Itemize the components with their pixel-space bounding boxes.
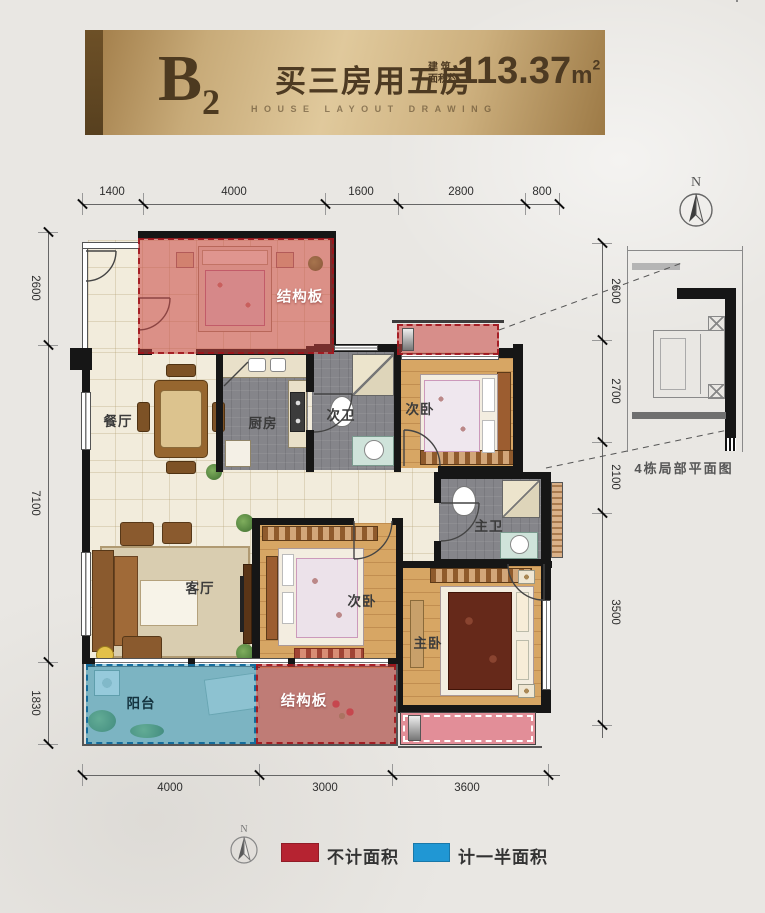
inset-border-top (627, 250, 743, 251)
bay-wedge (402, 328, 414, 351)
wall (252, 518, 354, 525)
wall (434, 479, 441, 503)
bed-pillow (516, 640, 529, 680)
legend-label-red: 不计面积 (327, 843, 399, 868)
wall-outline (82, 242, 140, 249)
unit-code-main: B (158, 42, 202, 115)
banner-left-bar (85, 30, 103, 135)
area-prefix-line1: 建 筑 (428, 62, 451, 73)
north-compass-top: N (672, 172, 720, 234)
dimension-line-top (82, 204, 560, 205)
bed-blanket-master (448, 592, 512, 690)
area-unit: m (571, 62, 592, 89)
legend-label-blue: 计一半面积 (458, 843, 548, 868)
bay-ledge (551, 482, 563, 558)
compass-needle-dark (689, 194, 696, 222)
nightstand (518, 684, 535, 698)
balcony-edge (396, 664, 398, 746)
nightstand (518, 570, 535, 584)
label-slab-bottom: 结构板 (281, 690, 328, 711)
inset-gray-bar (632, 412, 726, 419)
label-dining: 餐厅 (104, 410, 133, 430)
wardrobe (262, 526, 378, 541)
dim-right-3: 2100 (609, 464, 621, 490)
floor-plan-page: B2 买三房用五房 建 筑面积约 113.37m2 HOUSE LAYOUT D… (0, 0, 765, 913)
compass-needle-light (244, 837, 250, 860)
armchair (120, 522, 154, 546)
wall-outline (82, 248, 88, 350)
inset-border-left (627, 246, 628, 452)
dim-bottom-1: 4000 (157, 782, 183, 794)
bed-pillow (516, 592, 529, 632)
label-bedroom-second-top: 次卧 (406, 398, 435, 418)
bed-headboard (497, 372, 511, 460)
window (542, 600, 551, 690)
label-bath-second: 次卫 (327, 404, 356, 424)
kitchen-sink (270, 358, 286, 372)
unit-code: B2 (158, 46, 220, 120)
wall (396, 561, 508, 568)
unit-code-sub: 2 (202, 82, 220, 122)
dim-left-3: 1830 (29, 690, 41, 716)
toilet (452, 486, 476, 516)
dim-bottom-3: 3600 (454, 782, 480, 794)
dim-right-2: 2700 (609, 378, 621, 404)
dim-top-3: 1600 (348, 186, 374, 198)
bed-pillow (282, 592, 294, 624)
balcony-edge (82, 664, 84, 746)
wardrobe (430, 568, 532, 583)
label-living: 客厅 (186, 577, 215, 597)
label-slab-top: 结构板 (277, 286, 324, 307)
connector-top (499, 263, 682, 330)
sink-basin (510, 535, 529, 554)
area-value: 113.37m2 (457, 52, 600, 90)
label-bath-master: 主卫 (475, 515, 504, 535)
inset-wall (725, 288, 736, 438)
label-balcony: 阳台 (127, 692, 156, 712)
label-kitchen: 厨房 (249, 412, 278, 432)
bay-wedge (408, 715, 421, 741)
dim-top-5: 800 (532, 186, 551, 198)
compass-needle-light (696, 194, 703, 222)
dim-top-1: 1400 (99, 186, 125, 198)
dimension-line-left (48, 232, 49, 745)
bay-edge (398, 746, 542, 748)
dim-right-1: 2600 (609, 278, 621, 304)
inset-bed-line (700, 334, 701, 394)
balcony-edge (82, 744, 398, 746)
dimension-line-right (602, 243, 603, 738)
tv (240, 576, 244, 632)
dim-left-1: 2600 (29, 275, 41, 301)
dining-table-top (160, 390, 202, 448)
legend-swatch-blue (413, 843, 450, 862)
window (81, 552, 91, 636)
wall (306, 430, 314, 472)
area-prefix: 建 筑面积约 (428, 62, 458, 85)
wall (513, 344, 523, 472)
dim-right-4: 3500 (609, 599, 621, 625)
armchair (162, 522, 192, 544)
area-prefix-line2: 面积约 (428, 74, 458, 85)
wall (434, 472, 546, 479)
bed-pillow (282, 554, 294, 586)
sofa-seat (114, 556, 138, 646)
north-label: N (691, 175, 701, 190)
sofa (92, 550, 114, 652)
bed-pillow (482, 420, 495, 453)
compass-needle-dark (238, 837, 244, 860)
inset-border-right (742, 246, 743, 452)
dim-left-2: 7100 (29, 490, 41, 516)
kitchen-stove (290, 392, 305, 432)
north-label: N (240, 824, 247, 835)
dimension-line-bottom (82, 775, 560, 776)
wall (394, 344, 401, 472)
dining-chair (166, 364, 196, 377)
inset-hatch-block (725, 438, 736, 451)
overlay-balcony (86, 664, 256, 744)
sink-basin (364, 440, 384, 460)
inset-bed-mattress (660, 338, 686, 390)
north-compass-bottom: N (226, 822, 262, 868)
inset-window-box (708, 316, 725, 331)
area-number: 113.37 (457, 50, 571, 92)
inset-window-box (708, 384, 725, 399)
bed-headboard (266, 556, 278, 640)
wall (216, 352, 223, 472)
tv-cabinet (243, 564, 252, 644)
label-bedroom-second-bottom: 次卧 (348, 590, 377, 610)
shower (502, 480, 540, 518)
label-bedroom-master: 主卧 (414, 632, 443, 652)
kitchen-sink (248, 358, 266, 372)
bed-pillow (482, 378, 495, 412)
dining-chair (166, 461, 196, 474)
wardrobe (420, 450, 514, 465)
dim-bottom-2: 3000 (312, 782, 338, 794)
window (81, 392, 91, 450)
title-banner: B2 买三房用五房 建 筑面积约 113.37m2 HOUSE LAYOUT D… (103, 30, 605, 135)
wall-column (70, 348, 92, 370)
kitchen-cabinet (225, 440, 251, 467)
wall-thin (392, 320, 504, 323)
banner-subtitle: HOUSE LAYOUT DRAWING (251, 104, 498, 114)
area-unit-exponent: 2 (592, 56, 600, 72)
inset-light-bar (632, 263, 680, 270)
x (736, 0, 738, 2)
shower (352, 354, 394, 396)
dim-top-2: 4000 (221, 186, 247, 198)
dining-chair (137, 402, 150, 432)
window (334, 345, 378, 351)
wall (541, 472, 551, 566)
wall (252, 518, 260, 668)
dim-top-4: 2800 (448, 186, 474, 198)
inset-caption: 4栋局部平面图 (634, 458, 733, 477)
legend-swatch-red (281, 843, 319, 862)
